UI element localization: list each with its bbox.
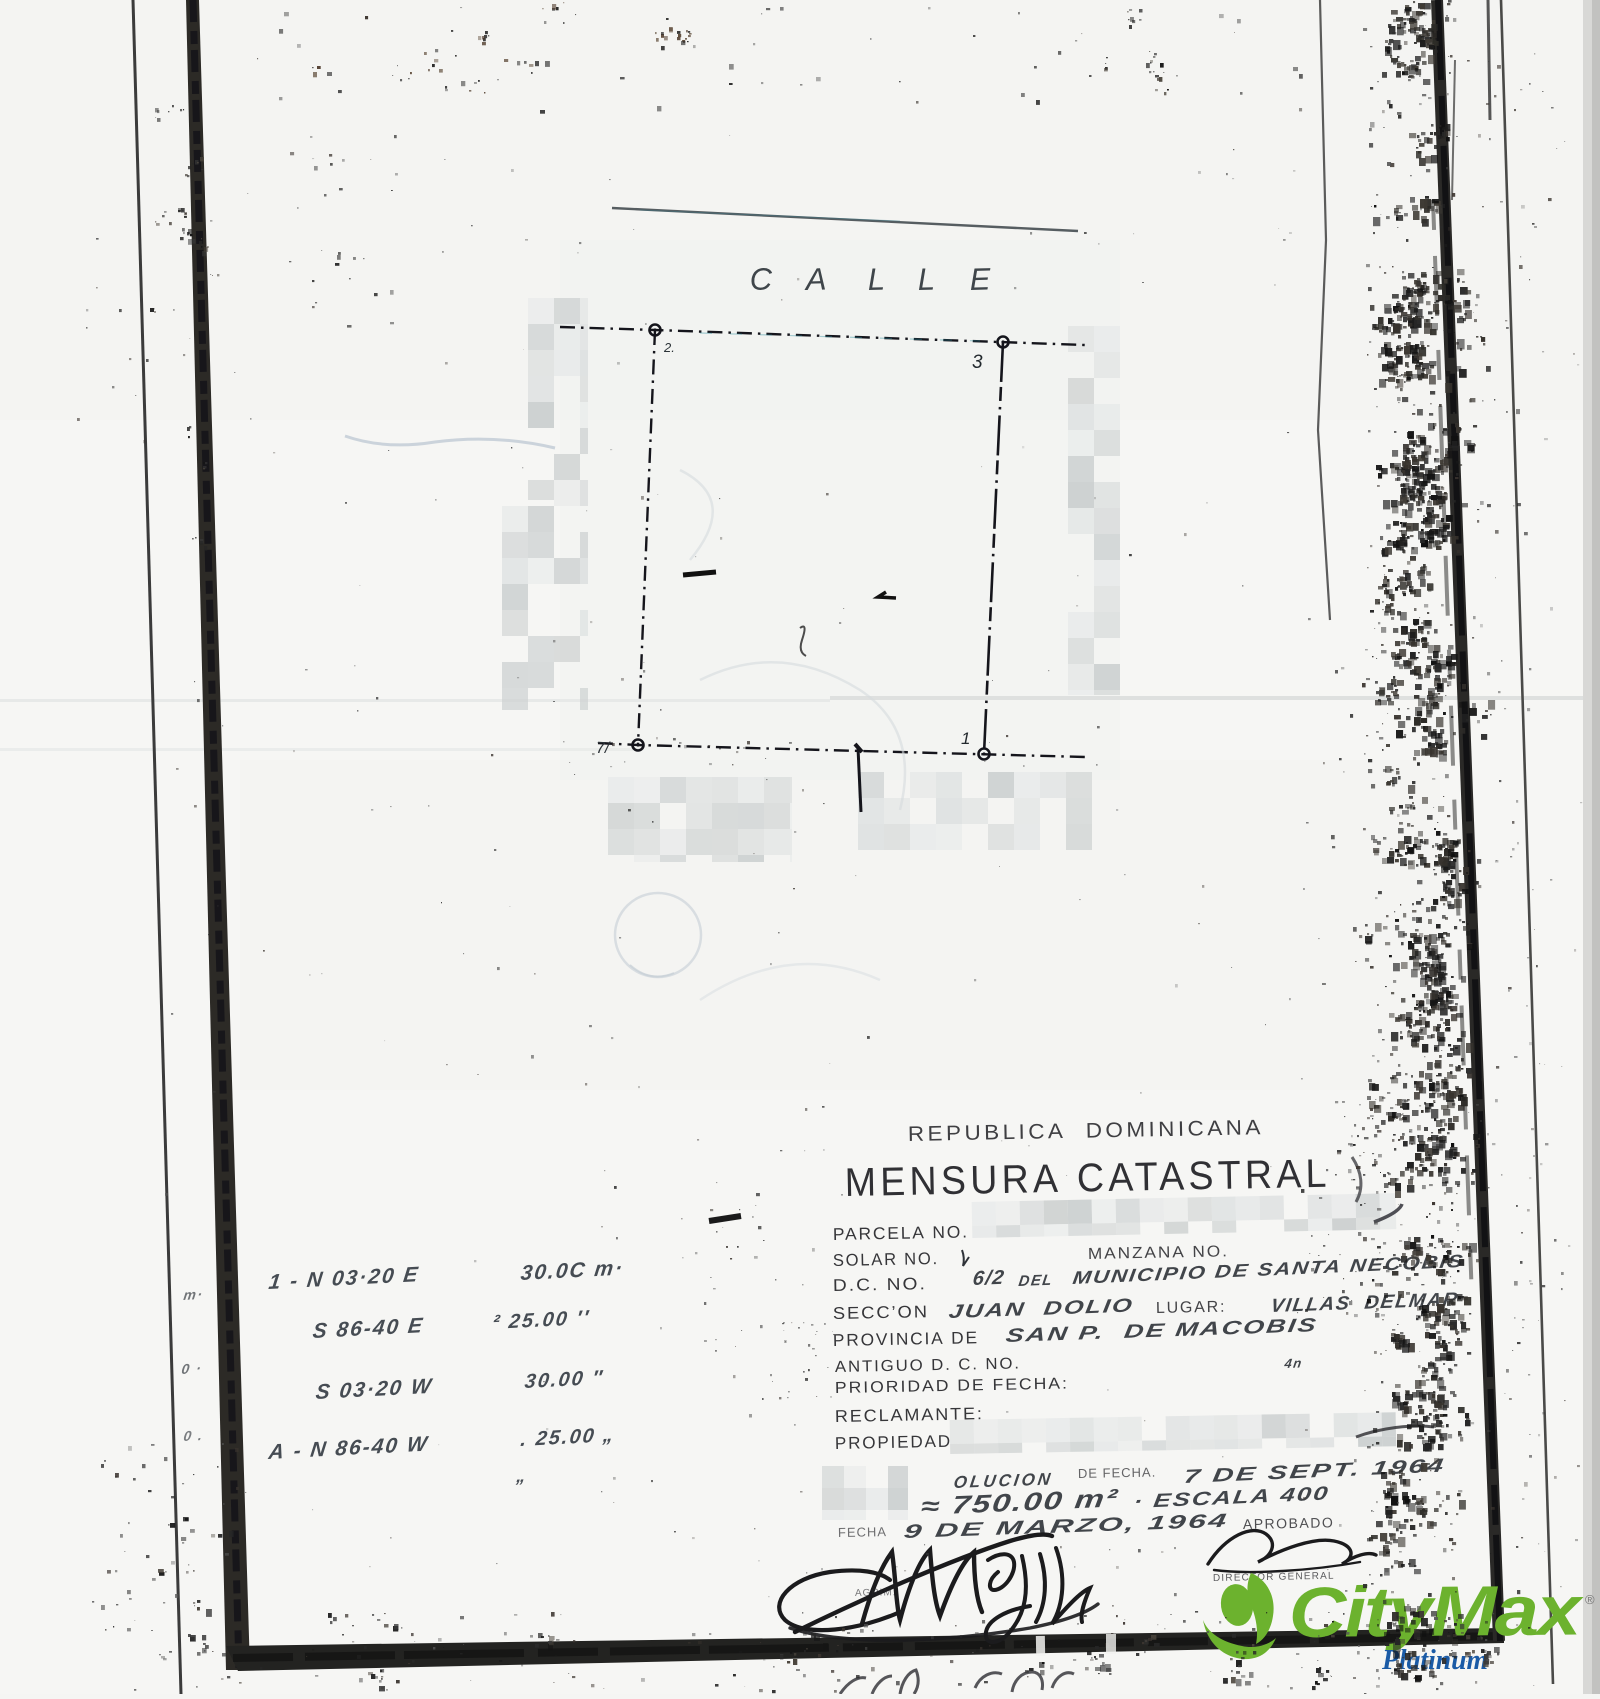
svg-text:ANTIGUO D. C. NO.: ANTIGUO D. C. NO. [835, 1355, 1021, 1376]
svg-text:7/: 7/ [596, 740, 611, 757]
svg-text:LUGAR:: LUGAR: [1156, 1299, 1227, 1317]
svg-text:MANZANA NO.: MANZANA NO. [1088, 1243, 1229, 1263]
svg-text:L: L [917, 262, 935, 297]
svg-text:0 ·: 0 · [181, 1360, 204, 1377]
svg-text:6/2: 6/2 [971, 1267, 1006, 1290]
svg-text:A: A [803, 261, 827, 297]
svg-text:MENSURA CATASTRAL: MENSURA CATASTRAL [844, 1152, 1331, 1205]
svg-text:PARCELA NO.: PARCELA NO. [833, 1222, 969, 1244]
svg-text:D.C. NO.: D.C. NO. [833, 1274, 927, 1295]
svg-text:RECLAMANTE:: RECLAMANTE: [835, 1404, 984, 1426]
svg-text:SECC’ON: SECC’ON [833, 1302, 929, 1323]
svg-text:3: 3 [972, 352, 983, 373]
svg-text:AGRIM.: AGRIM. [855, 1587, 897, 1599]
svg-text:4n: 4n [1283, 1355, 1304, 1371]
svg-text:DE FECHA.: DE FECHA. [1078, 1464, 1157, 1481]
svg-text:DEL: DEL [1017, 1272, 1054, 1290]
svg-text:PROVINCIA DE: PROVINCIA DE [833, 1328, 979, 1350]
svg-text:FECHA: FECHA [838, 1524, 887, 1540]
svg-text:2.: 2. [663, 340, 675, 355]
svg-text:E: E [969, 261, 991, 297]
svg-text:SOLAR NO.: SOLAR NO. [833, 1249, 939, 1270]
svg-text:30.00 ″: 30.00 ″ [523, 1367, 605, 1393]
svg-text:®: ® [1585, 1592, 1595, 1607]
svg-text:m·: m· [183, 1286, 205, 1303]
svg-text:PROPIEDAD: PROPIEDAD [835, 1432, 952, 1453]
svg-text:L: L [867, 262, 885, 297]
svg-text:1: 1 [961, 729, 970, 748]
svg-text:0 .: 0 . [183, 1427, 205, 1444]
svg-text:C: C [749, 261, 773, 297]
